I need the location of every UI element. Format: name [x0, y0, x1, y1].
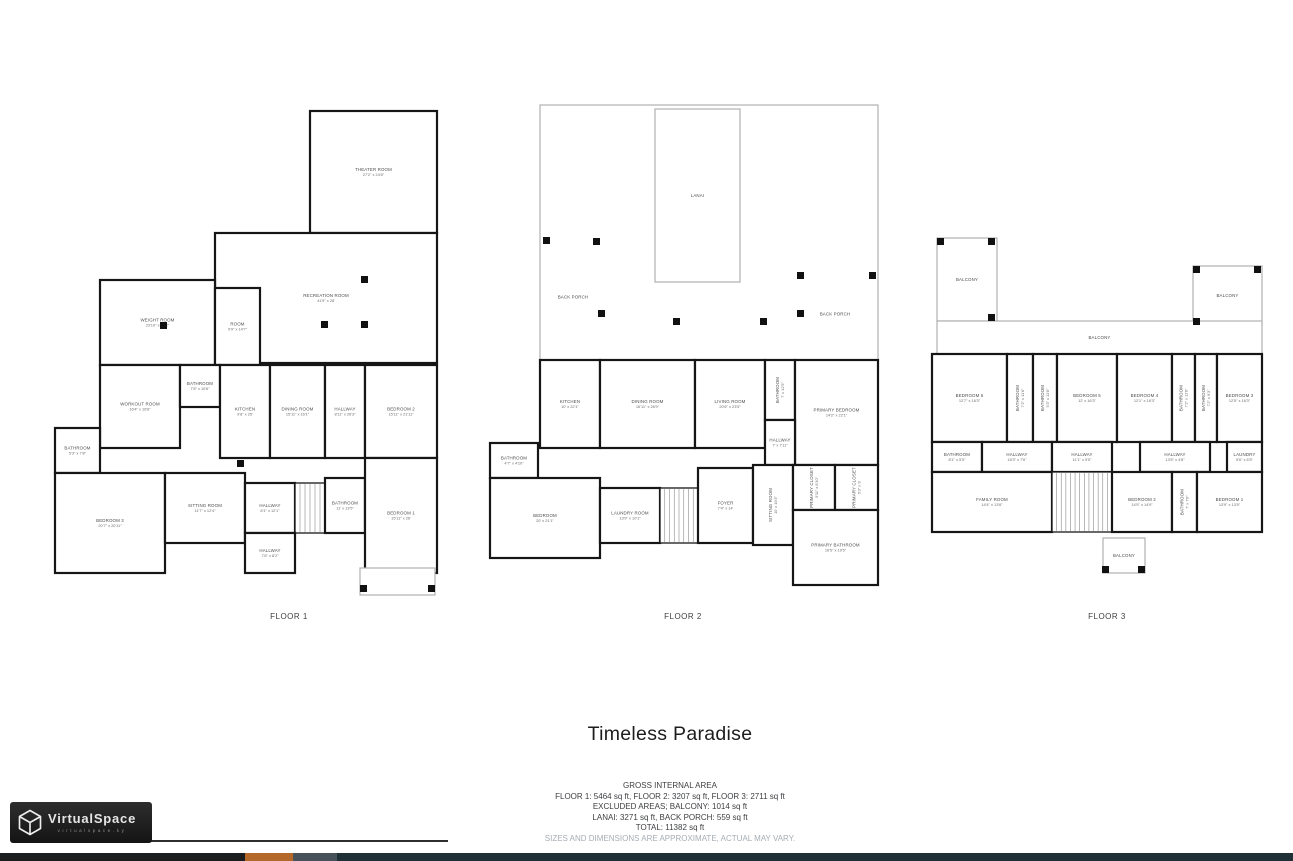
floor-3-plan: BALCONYBALCONYBALCONYBEDROOM 612'7" x 16…: [930, 228, 1265, 593]
svg-text:13'9" x 13'5": 13'9" x 13'5": [1219, 502, 1241, 507]
svg-text:16'11" x 26'9": 16'11" x 26'9": [636, 404, 660, 409]
hallway-label: HALLWAY11'1" x 5'5": [1071, 452, 1092, 462]
bedroom-2-label: BEDROOM 215'11" x 21'11": [387, 407, 415, 417]
svg-text:BALCONY: BALCONY: [1113, 553, 1135, 558]
foyer-label: FOYER7'4" x 14': [718, 501, 734, 511]
svg-text:16'3" x 7'6": 16'3" x 7'6": [1007, 457, 1027, 462]
svg-text:5'3" x 11'8": 5'3" x 11'8": [1045, 388, 1050, 408]
svg-text:15'11" x 21'11": 15'11" x 21'11": [388, 412, 414, 417]
bathroom-label: BATHROOM7'2" x 11'8": [1015, 385, 1025, 411]
area-disclaimer: SIZES AND DIMENSIONS ARE APPROXIMATE, AC…: [370, 834, 970, 845]
post: [428, 585, 435, 592]
svg-text:12'7" x 16'3": 12'7" x 16'3": [959, 398, 981, 403]
svg-text:15'11" x 16'1": 15'11" x 16'1": [286, 412, 310, 417]
post: [988, 238, 995, 245]
post: [361, 276, 368, 283]
post: [1102, 566, 1109, 573]
area-line-floors: FLOOR 1: 5464 sq ft, FLOOR 2: 3207 sq ft…: [370, 792, 970, 803]
svg-text:7'8" x 10'6": 7'8" x 10'6": [190, 386, 210, 391]
dining-room-label: DINING ROOM15'11" x 16'1": [282, 407, 314, 417]
hallway-label: HALLWAY7'6" x 8'2": [259, 548, 280, 558]
svg-text:BALCONY: BALCONY: [1088, 335, 1110, 340]
post: [1254, 266, 1261, 273]
bathroom-label: BATHROOM7'2" x 11'8": [1179, 385, 1189, 411]
post: [361, 321, 368, 328]
svg-text:LANAI: LANAI: [691, 193, 704, 198]
floor-2-caption: FLOOR 2: [633, 612, 733, 621]
floor-2-plan: LANAIBACK PORCHBACK PORCHKITCHEN10' x 22…: [488, 103, 883, 593]
svg-text:12'5" x 16'3": 12'5" x 16'3": [1229, 398, 1251, 403]
virtualspace-logo: VirtualSpace virtualspace.ky: [10, 802, 152, 843]
back-porch-label: BACK PORCH: [820, 312, 851, 317]
svg-text:16'5" x 19'5": 16'5" x 19'5": [825, 548, 847, 553]
cube-icon: [18, 809, 42, 836]
balcony-label: BALCONY: [1088, 335, 1110, 340]
bar-segment: [337, 853, 1293, 861]
balcony-label: BALCONY: [1216, 293, 1238, 298]
balcony-label: BALCONY: [1113, 553, 1135, 558]
svg-text:5'3" x 7'8": 5'3" x 7'8": [69, 451, 87, 456]
svg-text:41'9" x 28': 41'9" x 28': [317, 298, 335, 303]
svg-text:11'7" x 12'4": 11'7" x 12'4": [194, 508, 216, 513]
back-porch-label: BACK PORCH: [558, 295, 589, 300]
hallway-label: HALLWAY8'11" x 26'3": [334, 407, 356, 417]
kitchen-label: KITCHEN10' x 22'1": [560, 399, 580, 409]
svg-text:20'7" x 20'11": 20'7" x 20'11": [98, 523, 122, 528]
svg-text:12' x 16'3": 12' x 16'3": [1078, 398, 1096, 403]
bedroom-2-label: BEDROOM 214'5" x 14'9": [1128, 497, 1156, 507]
svg-text:7' x 12'5": 7' x 12'5": [780, 382, 785, 398]
bathroom-label: BATHROOM4'7" x 4'10": [501, 456, 527, 466]
svg-text:14'2" x 22'1": 14'2" x 22'1": [826, 413, 848, 418]
svg-text:5'11" x 8'10": 5'11" x 8'10": [814, 476, 819, 498]
bedroom-label: BEDROOM20' x 21'1": [533, 513, 557, 523]
post: [543, 237, 550, 244]
post: [760, 318, 767, 325]
svg-text:8'1" x 5'5": 8'1" x 5'5": [948, 457, 966, 462]
post: [1138, 566, 1145, 573]
page-title: Timeless Paradise: [420, 723, 920, 746]
svg-text:7'2" x 11'8": 7'2" x 11'8": [1184, 388, 1189, 408]
logo-subtext: virtualspace.ky: [58, 828, 127, 833]
post: [673, 318, 680, 325]
svg-text:7' x 7'11": 7' x 7'11": [772, 443, 788, 448]
bottom-bar: [0, 853, 1293, 861]
svg-text:5'3" x 9': 5'3" x 9': [857, 481, 862, 495]
bedroom-3-label: BEDROOM 320'7" x 20'11": [96, 518, 124, 528]
svg-text:20'6" x 23'5": 20'6" x 23'5": [719, 404, 741, 409]
post: [321, 321, 328, 328]
svg-text:13'9" x 10'1": 13'9" x 10'1": [619, 516, 641, 521]
svg-text:4'7" x 4'10": 4'7" x 4'10": [504, 461, 524, 466]
floor-3-caption: FLOOR 3: [1057, 612, 1157, 621]
svg-text:9'9" x 14'7": 9'9" x 14'7": [228, 327, 248, 332]
floor-3-svg: BALCONYBALCONYBALCONYBEDROOM 612'7" x 16…: [930, 228, 1265, 593]
svg-text:8'1" x 12'1": 8'1" x 12'1": [260, 508, 280, 513]
svg-text:7'2" x 9'3": 7'2" x 9'3": [1206, 389, 1211, 407]
svg-text:BACK PORCH: BACK PORCH: [558, 295, 589, 300]
post: [797, 272, 804, 279]
post: [237, 460, 244, 467]
svg-text:7'4" x 14': 7'4" x 14': [718, 506, 734, 511]
hallway-label: HALLWAY13'5" x 4'8": [1164, 452, 1185, 462]
svg-text:11' x 13'5": 11' x 13'5": [336, 506, 354, 511]
floorplan-page: THEATER ROOM27'2" x 24'6"RECREATION ROOM…: [0, 0, 1293, 861]
bar-segment: [293, 853, 337, 861]
svg-text:5'6" x 6'5": 5'6" x 6'5": [1236, 457, 1254, 462]
post: [869, 272, 876, 279]
svg-text:7'6" x 8'2": 7'6" x 8'2": [261, 553, 279, 558]
bathroom-label: BATHROOM5'3" x 11'8": [1040, 385, 1050, 411]
svg-text:10' x 22'1": 10' x 22'1": [561, 404, 579, 409]
svg-text:27'2" x 24'6": 27'2" x 24'6": [363, 172, 385, 177]
floor-2-svg: LANAIBACK PORCHBACK PORCHKITCHEN10' x 22…: [488, 103, 883, 593]
svg-text:BACK PORCH: BACK PORCH: [820, 312, 851, 317]
svg-text:16'4" x 16'8": 16'4" x 16'8": [129, 407, 151, 412]
post: [1193, 266, 1200, 273]
area-summary: GROSS INTERNAL AREA FLOOR 1: 5464 sq ft,…: [370, 781, 970, 845]
area-line-lanai: LANAI: 3271 sq ft, BACK PORCH: 559 sq ft: [370, 813, 970, 824]
svg-text:13'5" x 4'8": 13'5" x 4'8": [1165, 457, 1185, 462]
post: [160, 322, 167, 329]
hallway-label: HALLWAY16'3" x 7'6": [1006, 452, 1027, 462]
bedroom-3-label: BEDROOM 312'5" x 16'3": [1226, 393, 1254, 403]
bathroom-label: BATHROOM7'8" x 10'6": [187, 381, 213, 391]
floor-1-svg: THEATER ROOM27'2" x 24'6"RECREATION ROOM…: [55, 103, 465, 603]
balcony-label: BALCONY: [956, 277, 978, 282]
post: [988, 314, 995, 321]
bedroom-1-label: BEDROOM 113'9" x 13'5": [1216, 497, 1244, 507]
svg-text:15'11" x 26': 15'11" x 26': [391, 516, 411, 521]
bar-segment: [0, 853, 245, 861]
dining-room-label: DINING ROOM16'11" x 26'9": [632, 399, 664, 409]
laundry-label: LAUNDRY5'6" x 6'5": [1234, 452, 1256, 462]
hallway-label: HALLWAY7' x 7'11": [769, 438, 790, 448]
area-line-excluded: EXCLUDED AREAS; BALCONY: 1014 sq ft: [370, 802, 970, 813]
svg-text:20' x 21'1": 20' x 21'1": [536, 518, 554, 523]
floor-1-caption: FLOOR 1: [239, 612, 339, 621]
bedroom-4-label: BEDROOM 412'1" x 16'3": [1131, 393, 1159, 403]
kitchen-label: KITCHEN9'8" x 25': [235, 407, 255, 417]
lanai-label: LANAI: [691, 193, 704, 198]
bedroom-6-label: BEDROOM 612'7" x 16'3": [956, 393, 984, 403]
post: [360, 585, 367, 592]
outdoor: [360, 568, 435, 595]
post: [797, 310, 804, 317]
svg-text:BALCONY: BALCONY: [1216, 293, 1238, 298]
post: [1193, 318, 1200, 325]
svg-text:12'1" x 16'3": 12'1" x 16'3": [1134, 398, 1156, 403]
post: [593, 238, 600, 245]
area-heading: GROSS INTERNAL AREA: [370, 781, 970, 792]
post: [598, 310, 605, 317]
area-line-total: TOTAL: 11382 sq ft: [370, 823, 970, 834]
svg-text:10' x 19'3": 10' x 19'3": [773, 495, 778, 513]
svg-text:14'5" x 14'9": 14'5" x 14'9": [1131, 502, 1153, 507]
svg-text:8'11" x 26'3": 8'11" x 26'3": [334, 412, 356, 417]
svg-text:7' x 7'6": 7' x 7'6": [1185, 495, 1190, 509]
logo-text: VirtualSpace: [48, 812, 136, 826]
svg-text:11'1" x 5'5": 11'1" x 5'5": [1073, 457, 1093, 462]
hallway-label: HALLWAY8'1" x 12'1": [259, 503, 280, 513]
floor-1-plan: THEATER ROOM27'2" x 24'6"RECREATION ROOM…: [55, 103, 465, 603]
svg-text:9'8" x 25': 9'8" x 25': [237, 412, 253, 417]
svg-text:7'2" x 11'8": 7'2" x 11'8": [1020, 388, 1025, 408]
post: [937, 238, 944, 245]
svg-text:BALCONY: BALCONY: [956, 277, 978, 282]
bar-segment: [245, 853, 293, 861]
logo-text-block: VirtualSpace virtualspace.ky: [48, 812, 136, 833]
svg-text:14'4" x 13'6": 14'4" x 13'6": [981, 502, 1003, 507]
